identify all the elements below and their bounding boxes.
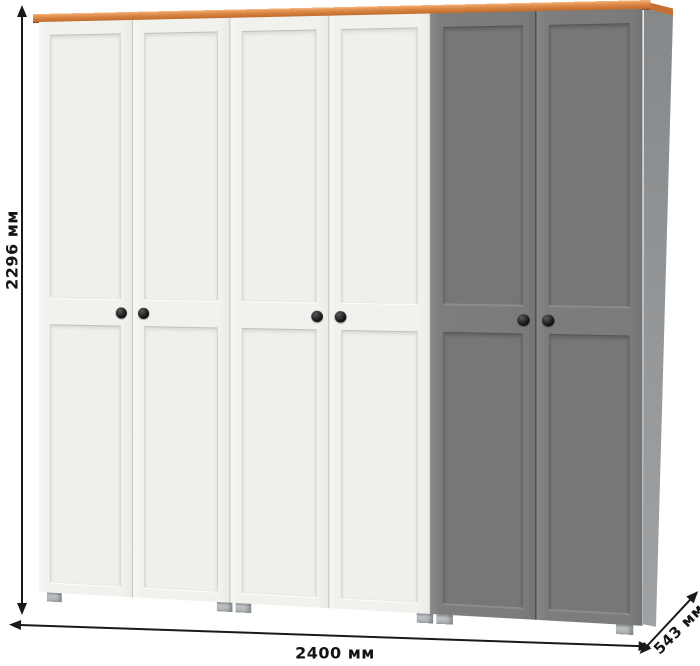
height-dimension-label: 2296 мм <box>3 210 22 290</box>
door-panel <box>443 25 522 305</box>
wardrobe-foot <box>47 592 62 602</box>
door-panel <box>341 27 418 304</box>
wardrobe-door-3 <box>230 16 329 609</box>
wardrobe-door-5 <box>431 11 536 620</box>
wardrobe-side-panel <box>642 8 673 628</box>
door-panel <box>341 330 418 603</box>
arrow-left-icon <box>9 619 21 629</box>
door-panel <box>241 328 316 597</box>
arrow-up-icon <box>17 5 27 17</box>
wardrobe-foot <box>436 614 452 624</box>
door-panel <box>50 33 121 299</box>
door-knob <box>311 311 323 323</box>
door-panel <box>144 31 217 300</box>
door-panel <box>144 326 217 592</box>
wardrobe-foot <box>417 613 433 623</box>
door-knob <box>517 314 529 326</box>
wardrobe-door-1 <box>39 20 133 597</box>
depth-dimension-label: 543 мм <box>650 600 700 658</box>
door-knob <box>116 307 127 318</box>
wardrobe-front <box>39 9 642 626</box>
door-panel <box>50 324 121 586</box>
wardrobe-foot <box>217 602 233 612</box>
door-knob <box>335 311 347 323</box>
product-dimension-image: 2296 мм 2400 мм 543 мм <box>0 0 700 666</box>
wardrobe-foot <box>616 624 633 635</box>
door-panel <box>241 29 316 302</box>
door-panel <box>548 23 629 307</box>
arrow-down-icon <box>17 603 27 615</box>
wardrobe-door-6 <box>536 9 642 626</box>
wardrobe-door-4 <box>329 13 431 614</box>
door-knob <box>138 308 149 319</box>
door-panel <box>548 334 629 614</box>
height-dimension-line <box>21 16 23 604</box>
door-knob <box>542 315 554 327</box>
door-panel <box>443 332 522 609</box>
wardrobe-foot <box>236 603 252 613</box>
width-dimension-label: 2400 мм <box>295 644 375 663</box>
wardrobe-door-2 <box>133 18 230 603</box>
